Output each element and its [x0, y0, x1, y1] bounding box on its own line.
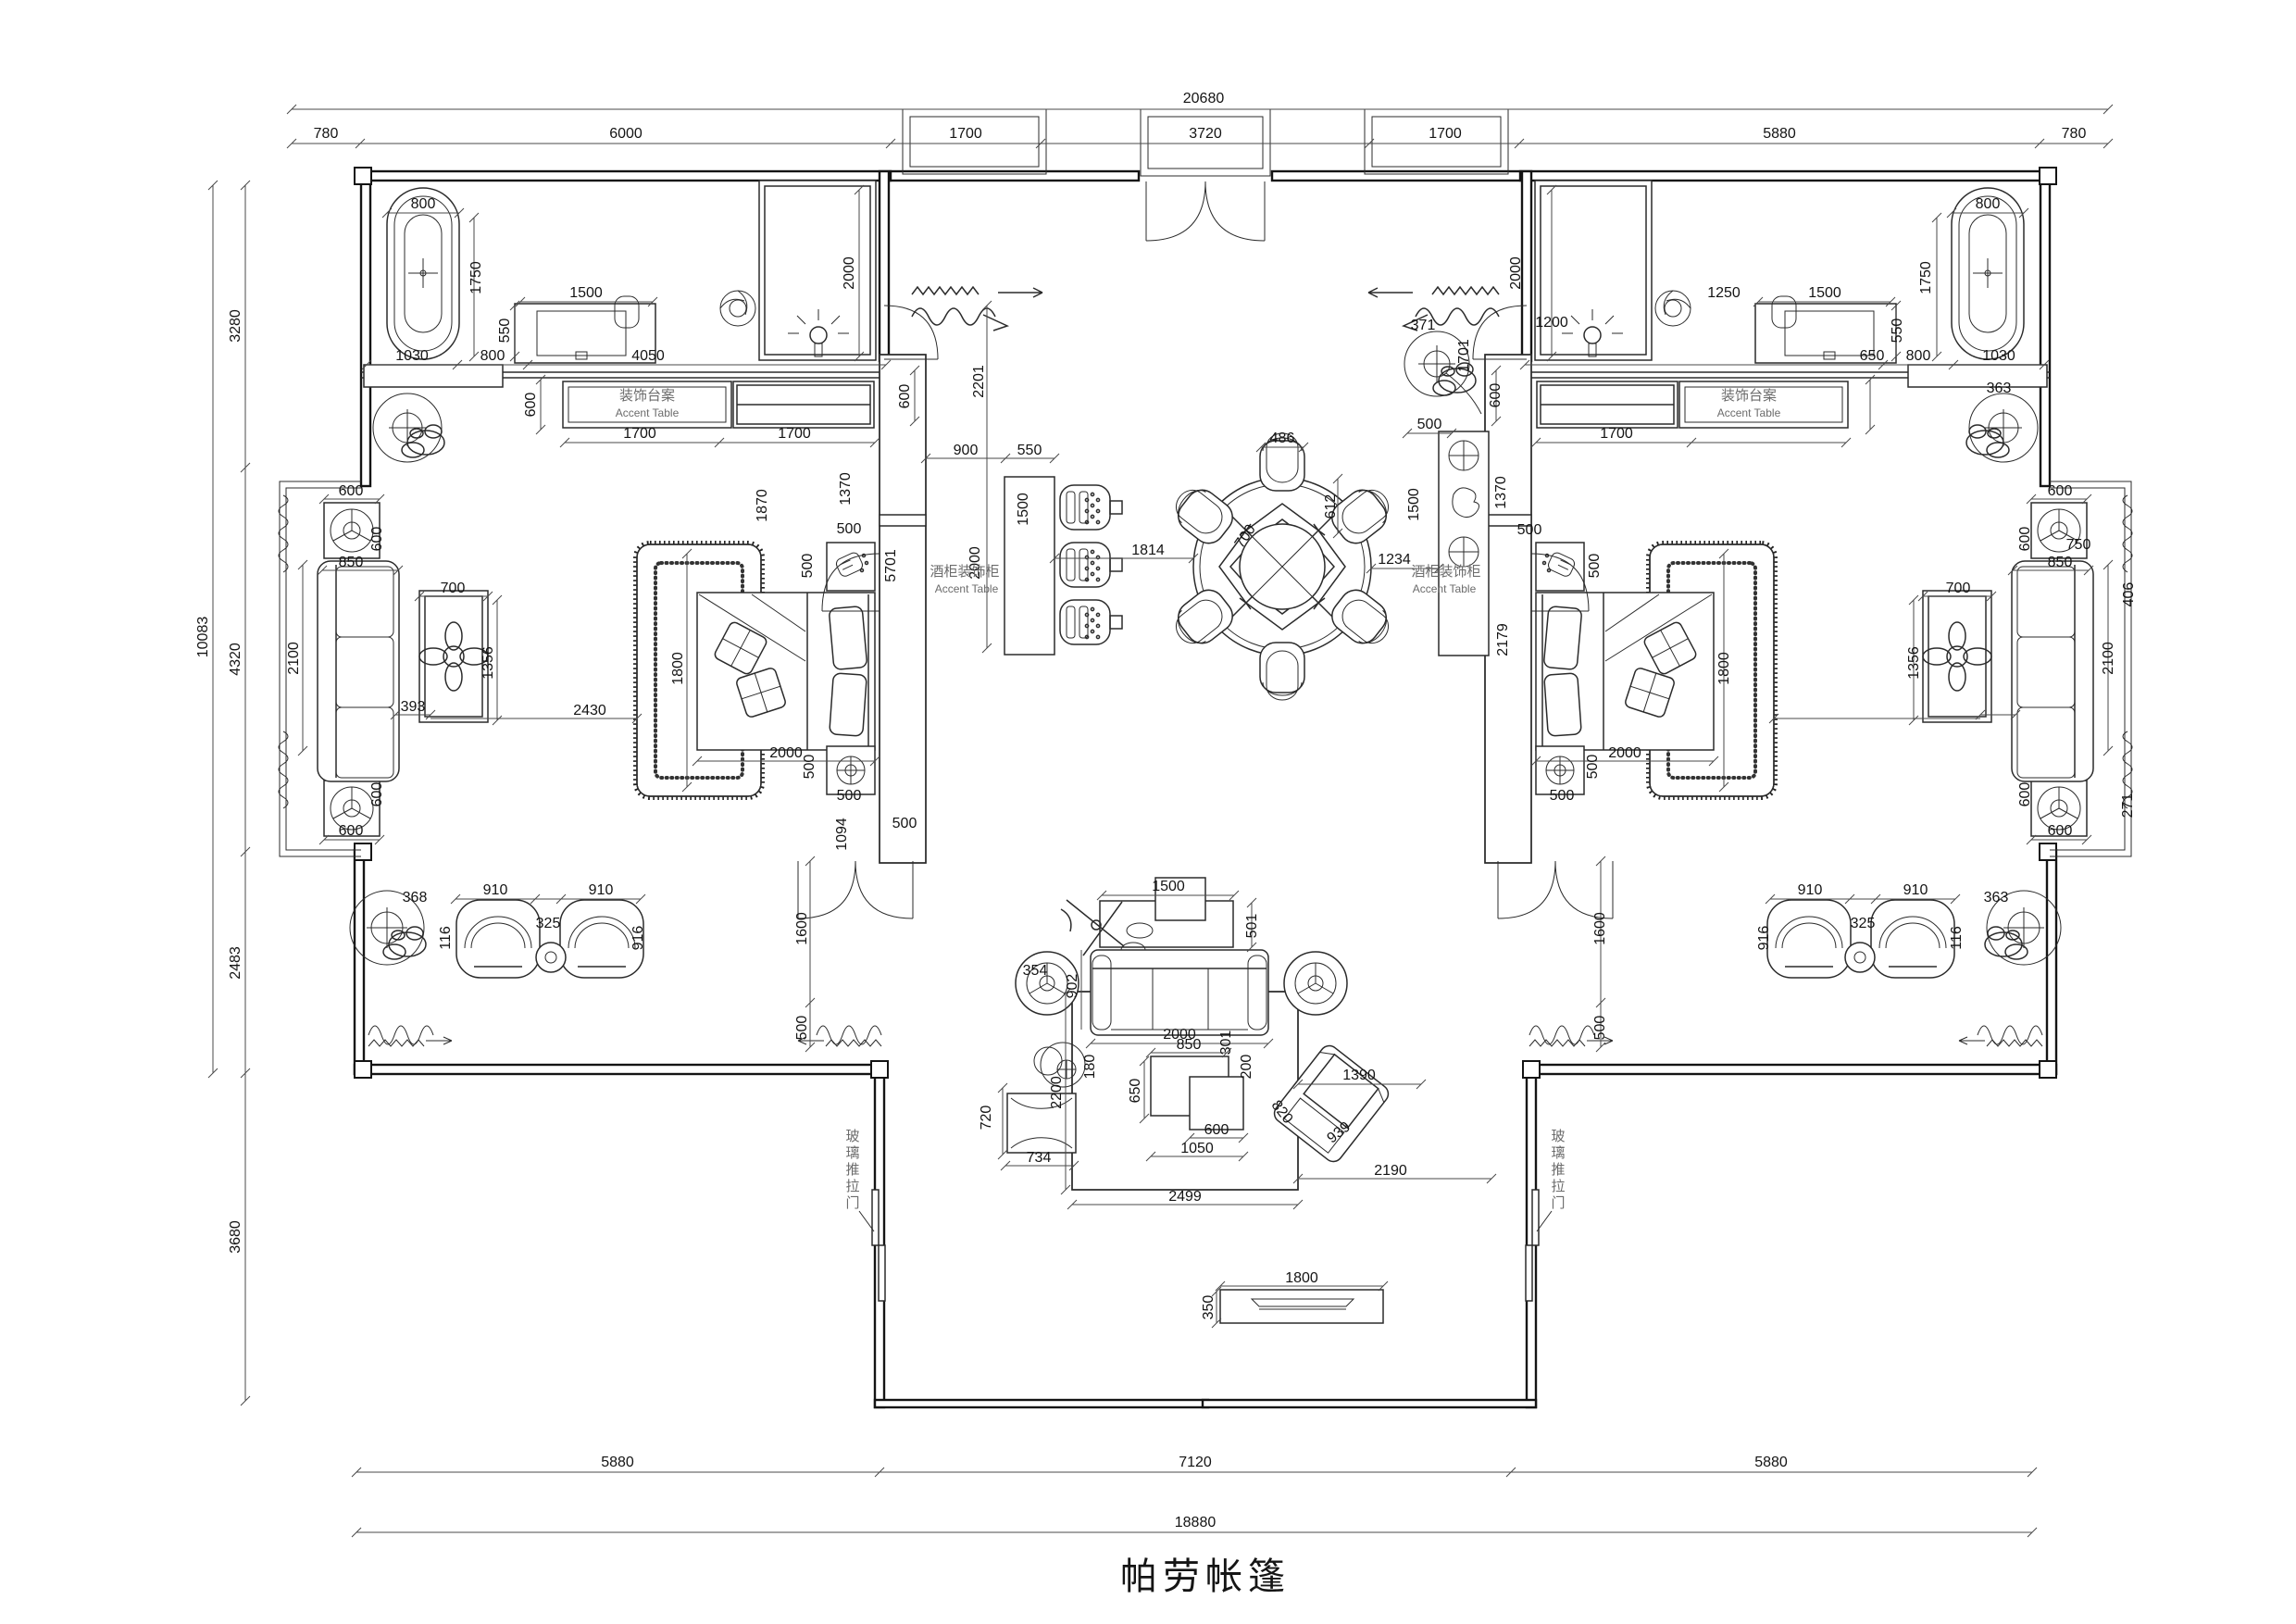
dimension-label: 916	[630, 926, 646, 951]
dimension-label: 393	[401, 699, 426, 715]
dimension-label: 2201	[971, 365, 987, 398]
dimension-label: 500	[1550, 788, 1575, 804]
balcony-sofa	[318, 561, 399, 781]
annotation-label: Accent Table	[616, 406, 680, 419]
wall-top-center	[891, 171, 1139, 181]
drawing-title: 帕劳帐篷	[1120, 1555, 1291, 1598]
dimension-label: 371	[1411, 318, 1436, 333]
dimension-label: 1800	[1285, 1270, 1318, 1286]
dimension-label: 1600	[1592, 912, 1608, 945]
porch	[903, 109, 1046, 174]
tv-console	[1220, 1290, 1383, 1323]
wicker-chair-2	[1060, 543, 1122, 587]
dimension-label: 4320	[228, 643, 243, 676]
dimension-label: 1356	[1906, 646, 1922, 680]
dimension-label: 910	[1798, 882, 1823, 898]
dimension-label: 550	[1017, 443, 1042, 458]
dimension-label: 18880	[1175, 1515, 1217, 1530]
bathtub	[387, 188, 459, 359]
wall-centerroom-bottom	[875, 1400, 1208, 1407]
dimension-label: 850	[339, 555, 364, 570]
dimension-label: 116	[1949, 926, 1965, 950]
dimension-label: 486	[1270, 431, 1295, 446]
dimension-label: 2483	[228, 946, 243, 980]
sofa-side-table-right	[1284, 952, 1347, 1015]
dimension-label: 500	[837, 521, 862, 537]
dimension-label: 2000	[842, 256, 857, 290]
dimension-label: 5880	[601, 1455, 634, 1470]
wardrobe	[733, 381, 874, 428]
dimension-label: 2430	[573, 703, 606, 718]
dimension-label: 7120	[1179, 1455, 1212, 1470]
annotation-label: Accent Table	[1717, 406, 1781, 419]
wall-terrace-bottom	[355, 1065, 886, 1074]
dimension-label: 3720	[1189, 126, 1222, 142]
dimension-label: 2000	[1508, 256, 1524, 290]
dimension-label: 612	[1323, 494, 1339, 519]
dimension-label: 910	[483, 882, 508, 898]
terrace-scroll-left	[368, 1026, 452, 1046]
dimension-label: 10083	[195, 617, 211, 658]
dimension-label: 500	[892, 816, 917, 831]
dimension-label: 1370	[838, 472, 854, 506]
dimension-label: 350	[1201, 1295, 1217, 1320]
dimension-label: 600	[1488, 383, 1504, 408]
dimension-label: 902	[1065, 974, 1080, 999]
dimension-label: 363	[1984, 890, 2009, 906]
dimension-label: 1500	[1406, 488, 1422, 521]
bed	[697, 593, 875, 750]
dimension-label: 1234	[1378, 552, 1411, 568]
dimension-label: 916	[1756, 926, 1772, 951]
dimension-label: 1094	[834, 818, 850, 851]
dimension-label: 2100	[2101, 642, 2116, 675]
dimension-label: 368	[403, 890, 428, 906]
dimension-label: 1700	[1600, 426, 1633, 442]
dimension-label: 850	[1177, 1037, 1202, 1053]
dimension-label: 800	[411, 196, 436, 212]
pillow	[829, 606, 867, 670]
dimension-label: 720	[979, 1106, 994, 1131]
dimension-label: 3680	[228, 1220, 243, 1254]
terrace-table	[536, 943, 566, 972]
dimension-label: 500	[794, 1016, 810, 1041]
dimension-label: 1700	[623, 426, 656, 442]
dimension-label: 650	[1860, 348, 1885, 364]
dimension-label: 1750	[1918, 261, 1934, 294]
annotation-label: Accent Table	[1413, 582, 1477, 595]
dimension-label: 750	[2066, 537, 2091, 553]
wall-interior-right	[880, 171, 889, 361]
dimension-label: 1814	[1131, 543, 1165, 558]
dimension-label: 800	[1976, 196, 2001, 212]
dimension-label: 650	[1128, 1079, 1143, 1104]
annotation-label: 玻璃推拉门	[845, 1129, 859, 1211]
floor-plan-page: 2068078060001700372017005880780588071205…	[0, 0, 2296, 1624]
dimension-label: 1500	[1016, 493, 1031, 526]
dimension-label: 500	[1417, 417, 1442, 432]
dimension-label: 200	[1239, 1055, 1254, 1080]
dimension-label: 600	[2048, 483, 2073, 499]
dimension-label: 1250	[1707, 285, 1741, 301]
living-sofa	[1091, 950, 1268, 1035]
dimension-label: 1370	[1493, 476, 1509, 509]
dimension-label: 1750	[468, 261, 484, 294]
dimension-label: 1700	[1429, 126, 1462, 142]
left-suite	[279, 109, 1208, 1407]
dimension-label: 600	[339, 483, 364, 499]
dimension-label: 500	[800, 554, 816, 579]
dimension-label: 910	[589, 882, 614, 898]
dimension-label: 2179	[1495, 623, 1511, 656]
dimension-label: 1200	[1535, 315, 1568, 331]
dimension-label: 500	[837, 788, 862, 804]
wicker-chair-3	[1060, 600, 1122, 644]
dimension-label: 550	[1890, 319, 1905, 344]
dimension-label: 501	[1244, 914, 1260, 939]
dimension-label: 1390	[1342, 1068, 1376, 1083]
shower	[759, 181, 876, 360]
dimension-label: 1500	[1808, 285, 1841, 301]
dimension-label: 1700	[778, 426, 811, 442]
dimension-label: 1500	[569, 285, 603, 301]
dimension-label: 363	[1987, 381, 2012, 396]
terrace-chair-1	[456, 900, 540, 978]
dimension-label: 325	[1851, 916, 1876, 931]
dimension-label: 2000	[769, 745, 803, 761]
dimension-label: 600	[2017, 527, 2033, 552]
annotation-label: Accent Table	[935, 582, 999, 595]
dimension-label: 5880	[1763, 126, 1796, 142]
deco-console	[1439, 431, 1489, 656]
dimension-label: 600	[2017, 782, 2033, 807]
annotation-label: 装饰台案	[619, 387, 675, 404]
wine-cabinet	[880, 355, 926, 863]
floor-plan-canvas: 2068078060001700372017005880780588071205…	[0, 0, 2296, 1624]
dimension-label: 2499	[1168, 1189, 1202, 1205]
dimension-label: 2190	[1374, 1163, 1407, 1179]
dimension-label: 600	[339, 823, 364, 839]
terrace-double-door	[798, 861, 913, 918]
dimension-label: 1800	[1716, 652, 1732, 685]
dimension-label: 500	[1585, 755, 1601, 780]
dining-chair-s	[1260, 643, 1304, 700]
shower-head-icon	[810, 327, 827, 344]
dimension-label: 354	[1023, 963, 1048, 979]
dimension-label: 116	[438, 926, 454, 950]
dimension-label: 600	[369, 782, 385, 807]
dimension-label: 1356	[480, 646, 496, 680]
dimension-label: 1030	[395, 348, 429, 364]
dimension-label: 800	[1906, 348, 1931, 364]
dimension-label: 1700	[949, 126, 982, 142]
dimension-label: 910	[1903, 882, 1928, 898]
wall-left-upper	[361, 171, 370, 486]
wall-top	[361, 171, 891, 181]
dimension-label: 700	[1946, 581, 1971, 596]
potted-plant	[373, 394, 444, 462]
dimension-label: 180	[1082, 1055, 1098, 1080]
dimension-label: 2100	[286, 642, 302, 675]
dimension-label: 550	[497, 319, 513, 344]
dimension-label: 3280	[228, 309, 243, 343]
dimension-label: 600	[369, 527, 385, 552]
dimension-label: 301	[1218, 1031, 1234, 1056]
dimension-label: 20680	[1183, 91, 1225, 106]
dimension-label: 600	[2048, 823, 2073, 839]
curtain-track-icon	[912, 287, 1042, 331]
dimension-label: 780	[314, 126, 339, 142]
dimension-label: 600	[523, 393, 539, 418]
dimension-label: 800	[480, 348, 505, 364]
dimension-label: 1600	[794, 912, 810, 945]
dimension-label: 500	[1592, 1016, 1608, 1041]
dimension-label: 325	[536, 916, 561, 931]
dimension-label: 1030	[1982, 348, 2015, 364]
dimension-label: 500	[1517, 522, 1542, 538]
annotation-label: 酒柜装饰柜	[930, 564, 999, 580]
dimension-label: 2200	[1049, 1076, 1065, 1109]
dimension-label: 1050	[1180, 1141, 1214, 1156]
dimension-label: 406	[2121, 582, 2137, 607]
balcony-coffee-table	[419, 591, 488, 722]
dimension-label: 5880	[1754, 1455, 1788, 1470]
dimension-label: 500	[1587, 554, 1603, 579]
dimension-label: 500	[802, 755, 817, 780]
dimension-label: 1500	[1152, 879, 1185, 894]
dimension-label: 600	[1204, 1122, 1229, 1138]
dimension-label: 271	[2120, 793, 2136, 818]
wall-left-lower	[355, 850, 364, 1074]
dimension-label: 734	[1027, 1150, 1052, 1166]
corridor-door	[884, 306, 938, 359]
dimension-label: 1800	[670, 652, 686, 685]
wall-lamp-icon	[720, 291, 755, 326]
dimension-label: 900	[954, 443, 979, 458]
pillow	[830, 673, 867, 736]
dimension-label: 600	[897, 384, 913, 409]
dimension-label: 2000	[1608, 745, 1641, 761]
bath-shelf	[364, 365, 503, 387]
right-suite	[1203, 109, 2132, 1407]
dimension-label: 6000	[609, 126, 643, 142]
entry-double-door	[1146, 181, 1265, 241]
dimension-label: 4050	[631, 348, 665, 364]
dimension-label: 5701	[883, 549, 899, 582]
nightstand-top	[827, 543, 875, 591]
annotation-label: 酒柜装饰柜	[1411, 564, 1480, 580]
dimension-label: 850	[2048, 555, 2073, 570]
wicker-chair-1	[1060, 485, 1122, 530]
dimension-label: 1870	[755, 489, 770, 522]
dimension-label: 700	[441, 581, 466, 596]
annotation-label: 玻璃推拉门	[1551, 1129, 1565, 1211]
dimension-label: 1701	[1456, 339, 1472, 372]
annotation-label: 装饰台案	[1721, 387, 1777, 404]
dimension-label: 780	[2062, 126, 2087, 142]
